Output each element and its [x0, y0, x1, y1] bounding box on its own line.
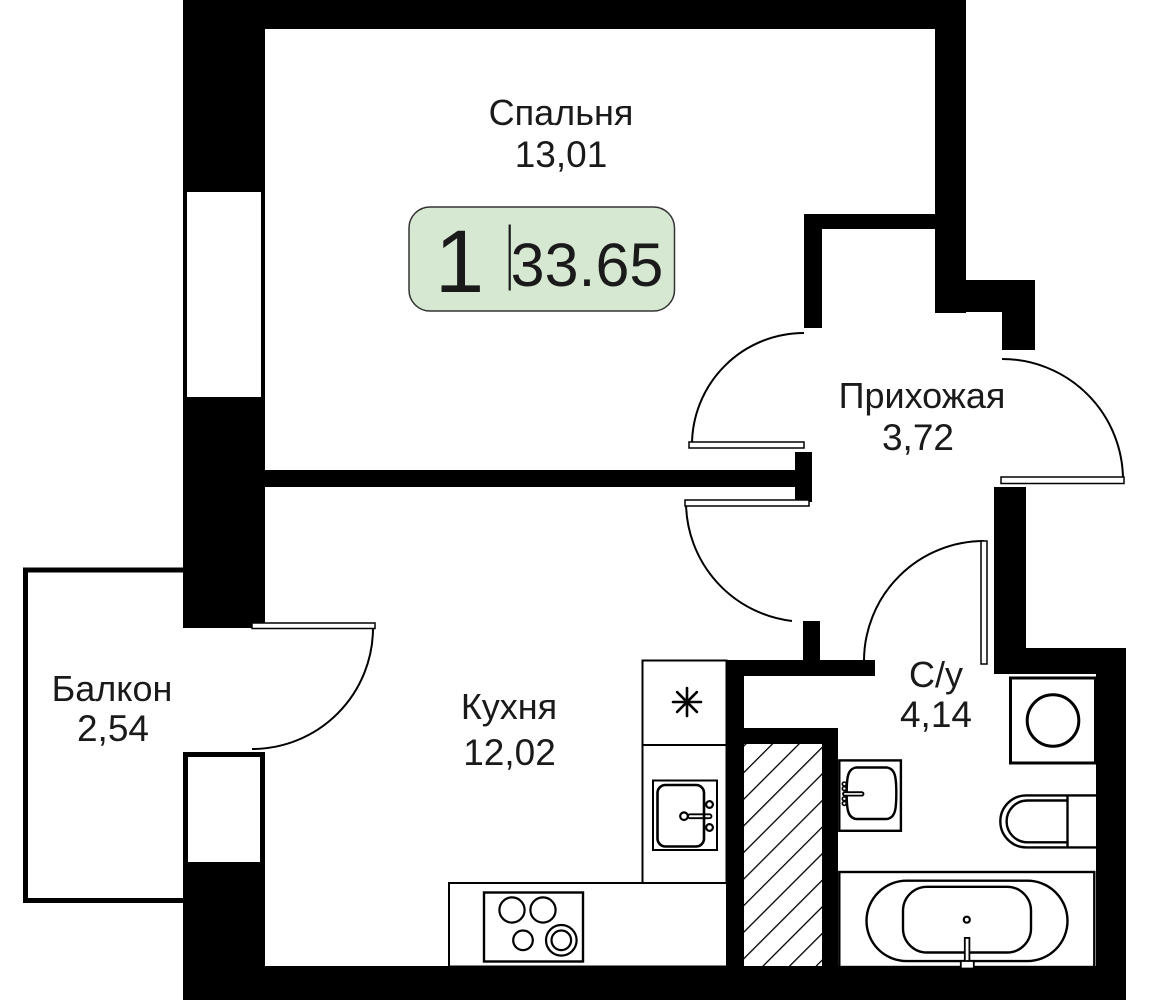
svg-text:4,14: 4,14	[900, 694, 972, 735]
svg-text:1: 1	[435, 211, 485, 311]
svg-text:2,54: 2,54	[77, 708, 149, 749]
svg-text:Спальня: Спальня	[489, 92, 634, 133]
svg-text:Балкон: Балкон	[52, 668, 173, 709]
svg-text:13,01: 13,01	[515, 134, 608, 175]
svg-text:3,72: 3,72	[882, 417, 954, 458]
svg-text:12,02: 12,02	[463, 732, 556, 773]
svg-text:Кухня: Кухня	[461, 686, 557, 727]
svg-text:С/у: С/у	[909, 654, 963, 695]
svg-text:33.65: 33.65	[511, 231, 664, 299]
svg-text:Прихожая: Прихожая	[839, 375, 1006, 416]
